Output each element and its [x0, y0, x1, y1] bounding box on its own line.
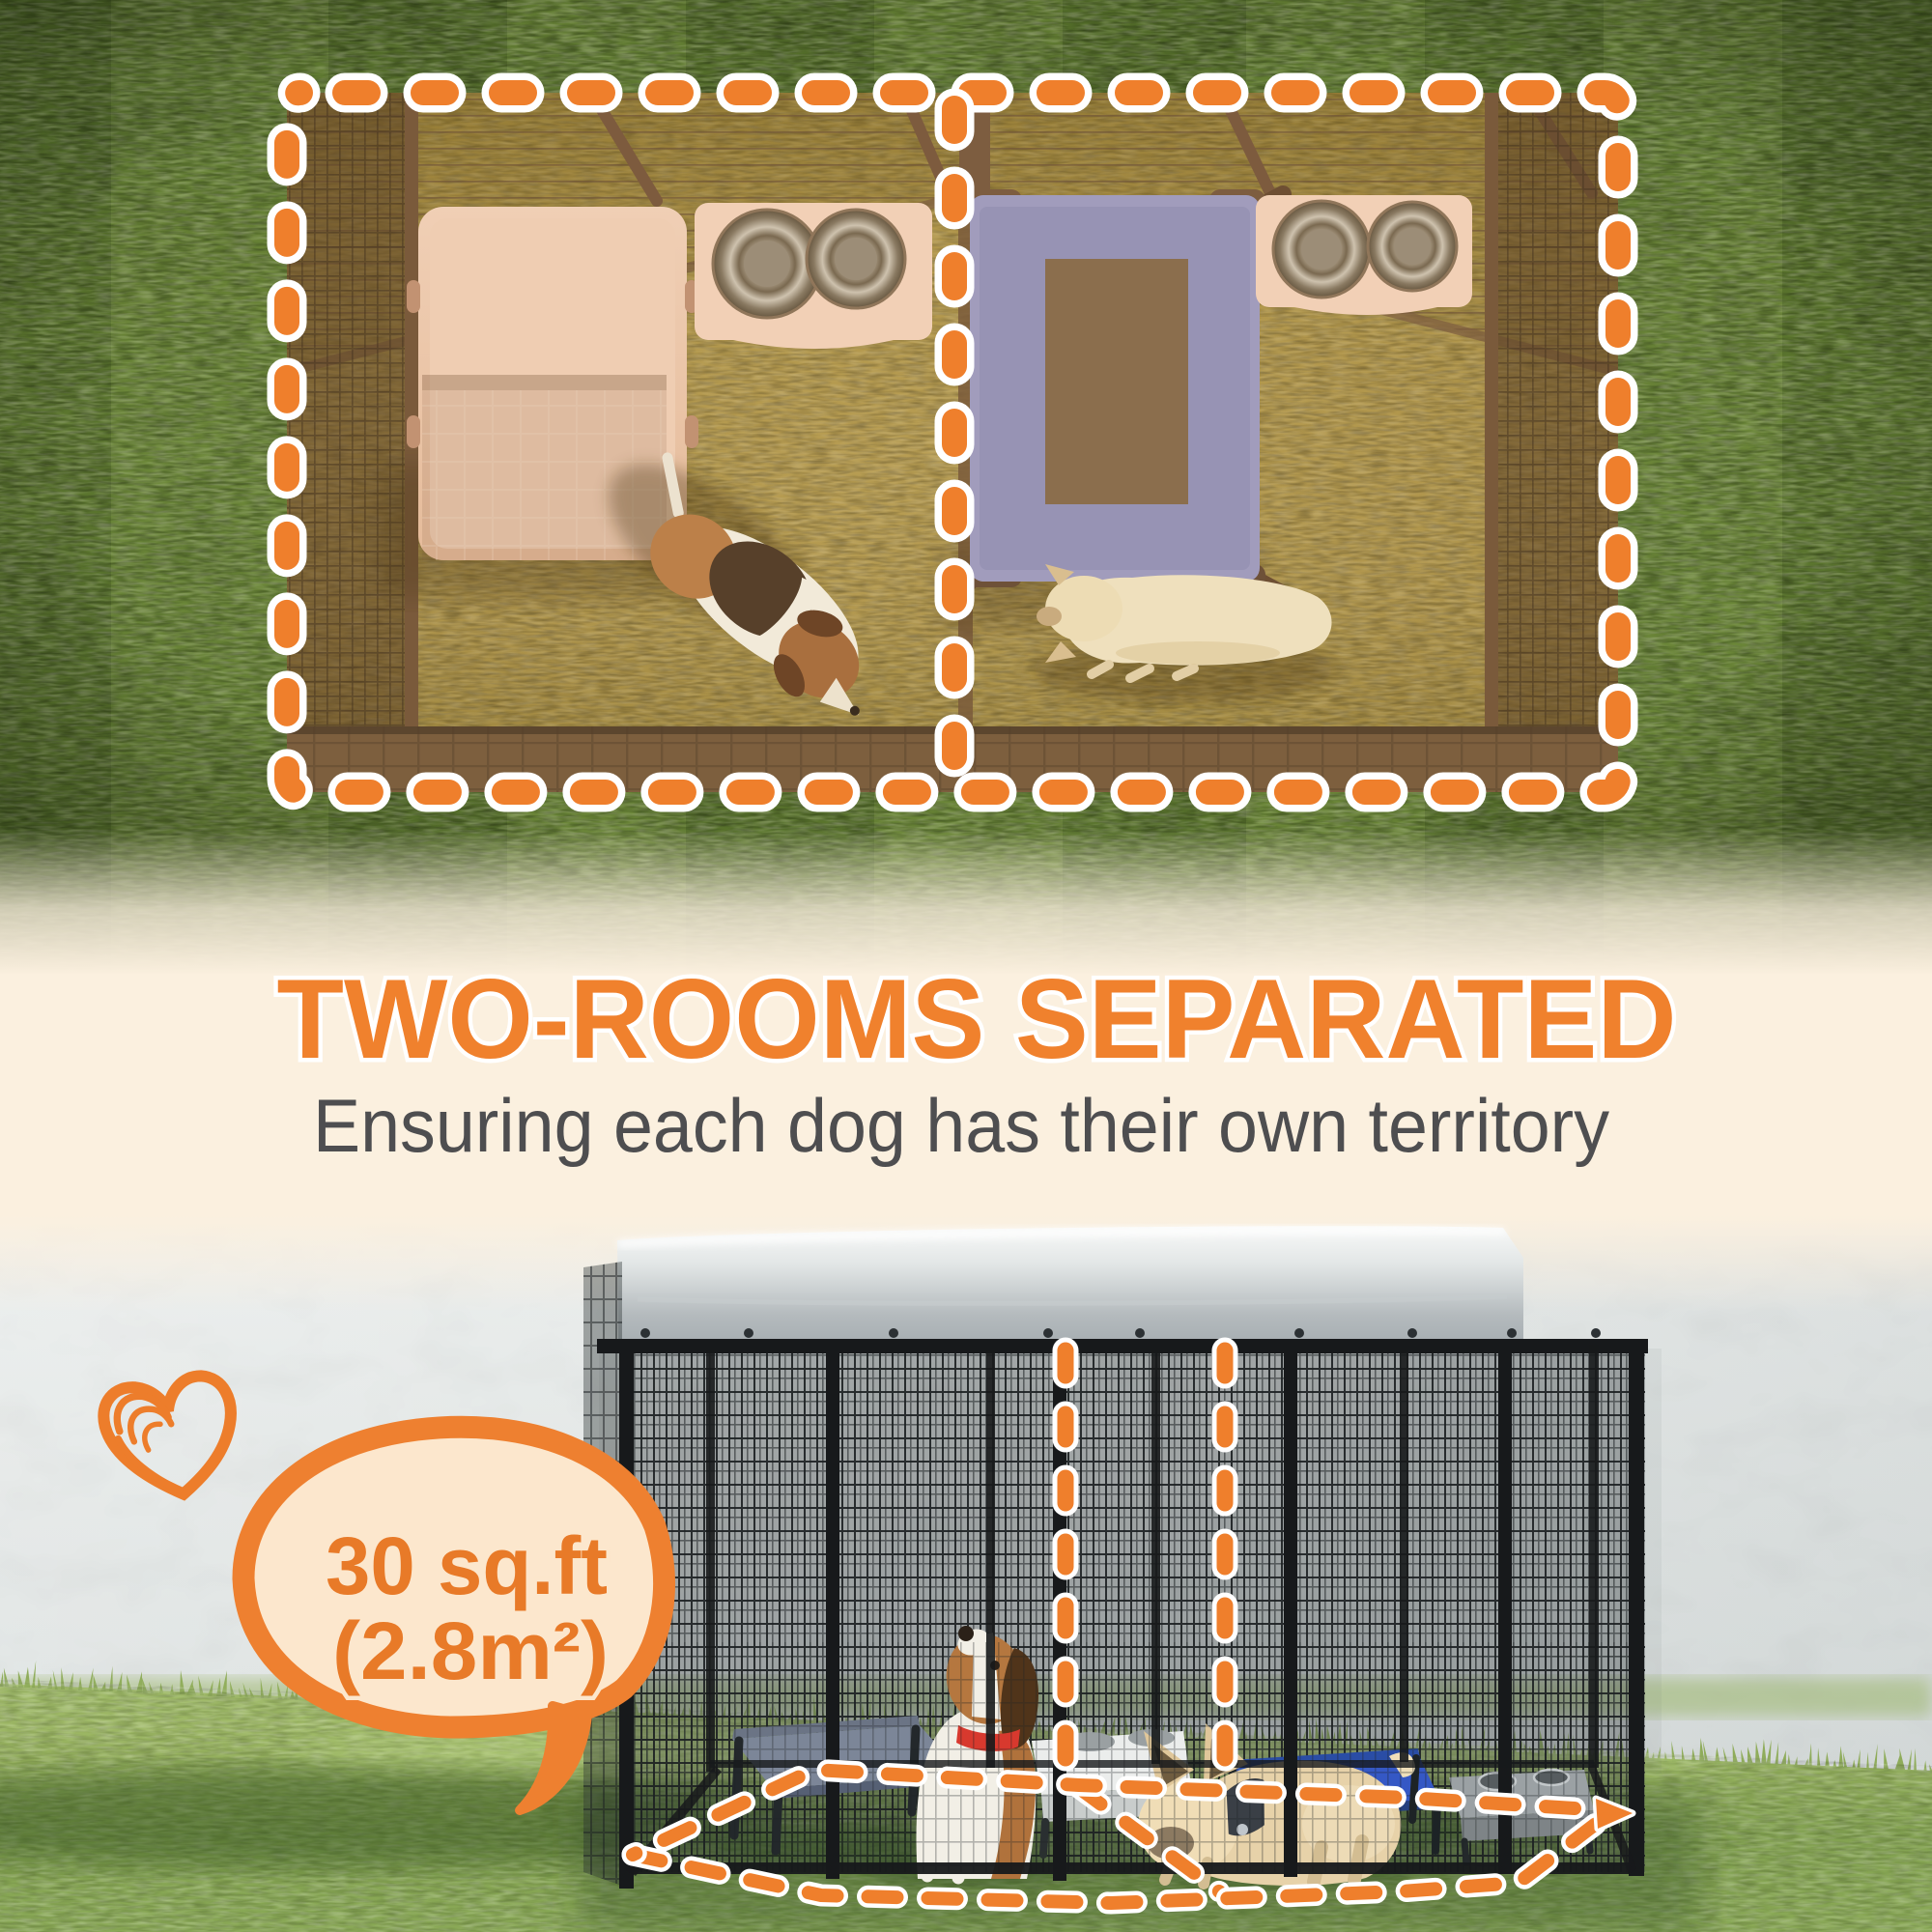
svg-text:(2.8m²): (2.8m²) — [332, 1605, 609, 1696]
svg-text:Ensuring each dog has their ow: Ensuring each dog has their own territor… — [313, 1083, 1609, 1168]
svg-text:30 sq.ft: 30 sq.ft — [326, 1520, 608, 1611]
svg-text:TWO-ROOMS SEPARATED: TWO-ROOMS SEPARATED — [277, 955, 1677, 1082]
